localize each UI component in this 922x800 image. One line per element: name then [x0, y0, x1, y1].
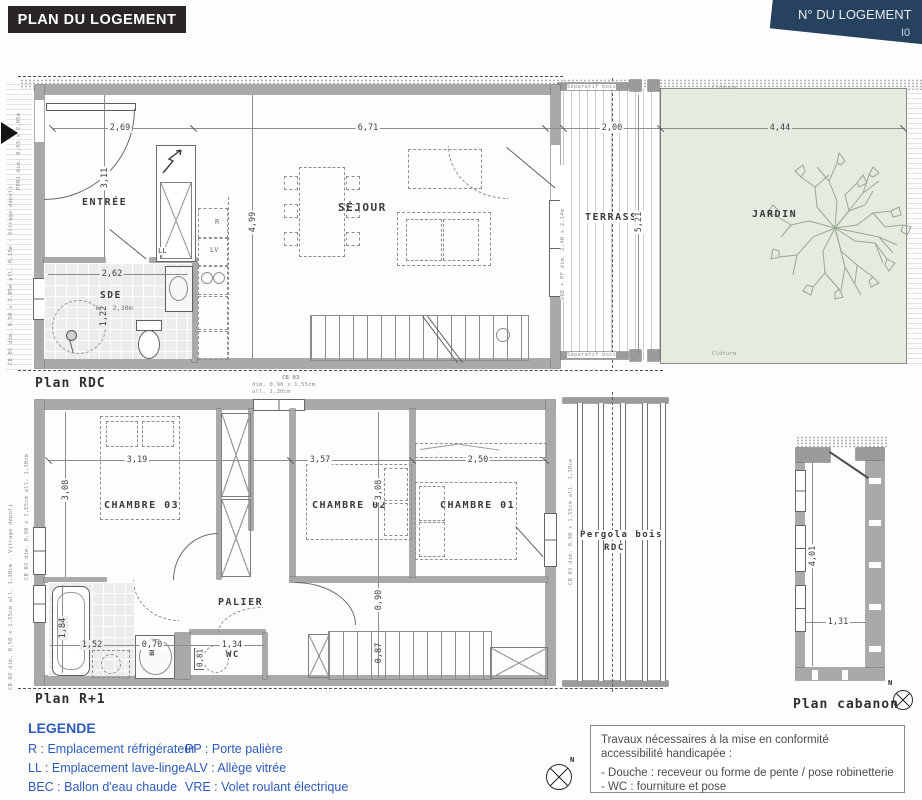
bay-window-note: VRE + PF dim. 2,40 x 2,14m — [560, 165, 566, 300]
sde-label: SDE — [100, 290, 122, 301]
pergola-centerline-rdc — [612, 78, 613, 368]
cabanon-corner — [856, 448, 884, 460]
dim-wc-depth: 0,81 — [196, 647, 205, 669]
dim-entree-width: 2,69 — [108, 123, 132, 133]
wc-door-swing — [218, 607, 263, 633]
toilet-bowl — [138, 330, 160, 359]
pillow — [419, 486, 445, 521]
cabanon-header — [796, 448, 830, 462]
dim-palier-width: 0,90 — [374, 588, 384, 612]
sofa-seat — [443, 219, 479, 261]
dim-wc-width: 1,34 — [220, 640, 244, 650]
washbasin-bowl — [101, 654, 121, 674]
legend-compass-icon — [546, 764, 572, 790]
fridge-label: R — [215, 218, 219, 226]
r1-closet-lower — [221, 499, 251, 577]
chair — [284, 232, 298, 246]
wood-divider-label-bottom: Séparatif bois — [567, 352, 616, 358]
dim-line-v — [378, 412, 379, 678]
site-boundary-rdc-bottom — [18, 370, 663, 371]
washer-label: LL — [158, 247, 166, 255]
dim-ch03-depth: 3,08 — [61, 478, 71, 502]
unit-number-value: I0 — [901, 27, 910, 39]
note-line: - Douche : receveur ou forme de pente / … — [601, 766, 894, 780]
legend-item: BEC : Ballon d'eau chaude — [28, 780, 177, 794]
cabanon-gravel — [796, 436, 888, 448]
legend-item: R : Emplacement réfrigérateur — [28, 742, 195, 756]
r1-left-window-bottom — [33, 585, 46, 623]
legend-item: VRE : Volet roulant électrique — [185, 780, 348, 794]
sink-bowl — [213, 272, 225, 284]
terrace-door-leaf — [506, 147, 555, 188]
chair — [284, 176, 298, 190]
sde2-door-swing — [133, 580, 179, 621]
r1-stair-void — [308, 634, 330, 678]
terrace-post — [630, 350, 641, 361]
note-line: accessibilité handicapée : — [601, 747, 894, 761]
dishwasher-label: LV — [210, 246, 218, 254]
dim-ch03-width: 3,19 — [125, 455, 149, 465]
cabanon-window — [795, 470, 806, 512]
dim-cabanon-depth: 4,01 — [808, 544, 818, 568]
electric-arrow-icon — [161, 147, 189, 177]
r1-window-note-ref: CB 03 — [282, 375, 300, 381]
r1-left-window-top — [33, 527, 46, 575]
pillow — [142, 421, 174, 447]
accessibility-note-box: Travaux nécessaires à la mise en conform… — [590, 725, 905, 793]
dim-cabanon-width: 1,31 — [826, 617, 850, 627]
stair-start-circle — [496, 328, 510, 342]
r1-wc-wall-right — [263, 633, 267, 679]
cabanon-window — [795, 525, 806, 572]
fence-label-top: Clôture — [712, 85, 737, 91]
dim-ch02-depth: 3,08 — [374, 478, 384, 502]
cabanon-window — [795, 585, 806, 632]
r1-right-window — [544, 513, 557, 567]
legend-title: LEGENDE — [28, 720, 96, 736]
rdc-kitchen-counter-edge — [228, 197, 229, 360]
r1-corner-closet — [490, 647, 548, 679]
terrace-post — [630, 80, 641, 91]
site-boundary-top — [18, 76, 563, 77]
chair — [346, 176, 360, 190]
rdc-terrace-door-opening — [551, 145, 560, 200]
r1-caption: Plan R+1 — [35, 692, 106, 707]
cabanon-slot — [869, 478, 881, 484]
pergola-label-2: RDC — [604, 543, 625, 553]
garden-label: JARDIN — [752, 209, 797, 220]
dim-terrasse-depth: 5,21 — [634, 210, 644, 234]
dim-sde2-width: 1,52 — [80, 640, 104, 650]
note-line: Travaux nécessaires à la mise en conform… — [601, 733, 894, 747]
dim-sejour-depth: 4,99 — [248, 210, 258, 234]
pergola-window-note: CB 03 dim. 0,90 x 1,55cm all. 1,30cm — [568, 455, 574, 585]
page-title: PLAN DU LOGEMENT — [8, 6, 186, 33]
legend-item: ALV : Allège vitrée — [185, 761, 286, 775]
cabanon-slot — [869, 646, 881, 652]
r1-stairs — [328, 631, 492, 680]
dim-sde-depth: 1,22 — [99, 304, 109, 328]
r1-left-window-note-top: CB 03 dim. 0,90 x 1,55cm all. 1,30cm — [24, 455, 30, 580]
pergola-slat — [620, 403, 626, 681]
terrace-post — [648, 350, 659, 361]
fridge-slot — [198, 208, 228, 238]
dim-sde2-depth: 1,84 — [58, 616, 68, 640]
pergola-centerline — [612, 392, 613, 692]
legend-item: PP : Porte palière — [185, 742, 283, 756]
unit-number-label: N° DU LOGEMENT — [798, 7, 912, 22]
pergola-cap-bottom — [563, 681, 668, 686]
rdc-wall-top — [35, 85, 560, 94]
cabanon-compass-icon — [893, 690, 913, 710]
note-line: - WC : fourniture et pose — [601, 780, 894, 794]
dim-ch02-width: 3,57 — [308, 455, 332, 465]
chair — [346, 232, 360, 246]
cabanon-compass-n: N — [888, 679, 892, 687]
r1-window-note-all: all. 1,30cm — [252, 389, 291, 395]
kitchen-cabinet — [198, 331, 228, 360]
dim-stair-width: 0,87 — [374, 641, 384, 665]
pillow — [384, 503, 408, 536]
rdc-caption: Plan RDC — [35, 376, 106, 391]
fence-label-bottom: Clôture — [712, 351, 737, 357]
cabanon-notch — [812, 670, 818, 680]
dim-bec-width: 0,70 — [140, 640, 164, 650]
pillow — [419, 522, 445, 557]
pergola-slat — [598, 403, 604, 681]
r1-bec-wall — [175, 633, 190, 679]
cabanon-slot — [869, 520, 881, 526]
terrace-post — [648, 80, 659, 91]
dining-table — [299, 167, 345, 257]
legend-compass-n: N — [570, 756, 574, 764]
ch03-door-swing — [173, 533, 218, 580]
dim-jardin-width: 4,44 — [768, 123, 792, 133]
sde-window-note: CB 01 dim. 0,50 x 2,05m all. 0,15m - Vit… — [8, 205, 14, 365]
floor-plan-sheet: PLAN DU LOGEMENT N° DU LOGEMENT I0 Clôtu… — [0, 0, 922, 800]
cabanon-slot — [869, 604, 881, 610]
pillow — [106, 421, 138, 447]
pillow — [384, 468, 408, 501]
rdc-sde-door-leaf — [109, 229, 146, 259]
r1-closet-upper — [221, 413, 251, 497]
r1-ch02-wall-left — [290, 409, 295, 582]
shower-head-icon — [66, 330, 77, 341]
r1-ch02-wall-bottom — [290, 577, 547, 582]
pergola-slat — [642, 403, 648, 681]
cabanon-caption: Plan cabanon — [793, 697, 899, 712]
chair — [346, 204, 360, 218]
r1-left-window-note-bottom: CB 02 dim. 0,50 x 1,55cm all. 1,30cm - V… — [8, 530, 14, 690]
dim-entree-depth: 3,11 — [100, 166, 110, 190]
vanity-basin — [169, 276, 188, 301]
sink-bowl — [201, 272, 213, 284]
pergola-slat — [577, 403, 583, 681]
entry-door-note: PP01 dim. 0,93 x 2,05m — [16, 95, 22, 190]
pergola-slat — [660, 403, 666, 681]
legend-item: LL : Emplacement lave-linge — [28, 761, 185, 775]
kitchen-hob — [198, 296, 228, 330]
sofa-seat — [406, 219, 442, 261]
pergola-label-1: Pergola bois — [580, 530, 663, 540]
r1-top-window — [253, 399, 305, 411]
dim-sejour-width: 6,71 — [356, 123, 380, 133]
cabanon-notch — [842, 670, 848, 680]
garden-tree — [745, 133, 922, 323]
chair — [284, 204, 298, 218]
ch02-door-swing — [295, 582, 356, 625]
cabanon-slot — [869, 562, 881, 568]
wood-divider-label-top: Séparatif bois — [567, 84, 616, 90]
site-boundary-r1-bottom — [18, 688, 663, 689]
ch01-window-leaf — [515, 526, 543, 557]
rdc-entry-opening — [35, 100, 44, 142]
cabanon-wall-bottom — [796, 668, 884, 680]
r1-window-note-dim: dim. 0,90 x 1,55cm — [252, 382, 315, 388]
dim-terrasse-width: 2,00 — [600, 123, 624, 133]
terrace-door-swing — [448, 146, 508, 199]
dim-ch01-width: 2,50 — [466, 455, 490, 465]
dim-sde-width: 2,62 — [100, 269, 124, 279]
